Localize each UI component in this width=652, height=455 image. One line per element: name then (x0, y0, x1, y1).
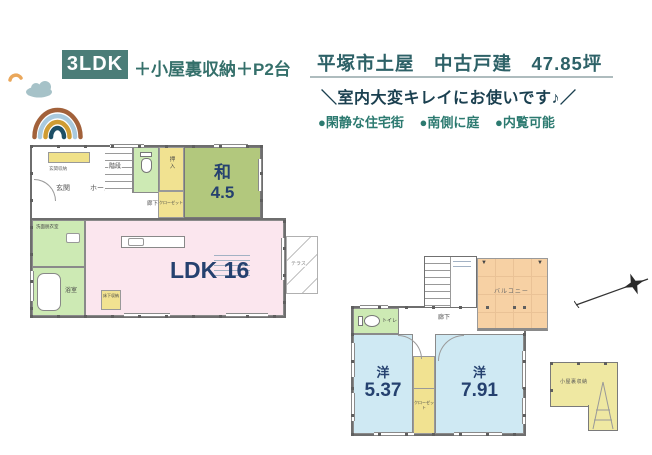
bathtub-icon (37, 273, 61, 311)
north-arrow-icon (574, 272, 652, 308)
cloud-icon (26, 81, 52, 98)
balcony-label: バルコニー (494, 289, 529, 296)
ladder-icon (548, 358, 628, 436)
room-label-corridor-2f: 廊下 (438, 315, 450, 322)
room-closet-2f (413, 356, 435, 434)
room-label-closet-2f: クローゼット (414, 401, 434, 411)
room-label-closet-1f: クローゼット (158, 201, 184, 206)
attic-storage-plan: 小屋裏収納 (548, 358, 628, 436)
laundry-mark-icon: ▼ (481, 260, 487, 266)
feature-list: ●閑静な住宅街 ●南側に庭 ●内覧可能 (318, 112, 567, 131)
room-label-corridor: 廊下 (147, 201, 158, 208)
toilet-icon (141, 158, 152, 173)
feature-item: ●内覧可能 (495, 115, 555, 130)
attic-label: 小屋裏収納 (560, 379, 588, 385)
laundry-mark-icon: ▼ (537, 260, 543, 266)
room-area-yo1: 5.37 (365, 380, 402, 403)
room-label-wa: 和 (214, 163, 231, 183)
terrace-label: テラス (291, 261, 306, 267)
wall-pillars (351, 306, 526, 309)
feature-item: ●南側に庭 (419, 115, 479, 130)
floor1-plan: 玄関収納 玄関 ホール 廊下 階段 押入 クローゼット 和 4.5 LDK 16… (28, 143, 324, 325)
layout-badge: 3LDK (62, 50, 128, 79)
room-japanese: 和 4.5 (184, 147, 261, 218)
shoe-cabinet-label: 玄関収納 (49, 166, 67, 171)
toilet-icon (140, 152, 152, 157)
layout-extras: ＋小屋裏収納＋P2台 (134, 55, 291, 80)
toilet-icon (358, 316, 363, 326)
room-label-oshiire: 押入 (169, 157, 176, 170)
catchphrase: ＼室内大変キレイにお使いです♪／ (321, 84, 577, 108)
fine-print-lines (453, 261, 471, 271)
room-label-toilet: トイレ (382, 318, 397, 324)
shoe-cabinet (48, 152, 90, 163)
wall-pillars (260, 145, 263, 218)
real-estate-flyer: 3LDK ＋小屋裏収納＋P2台 平塚市土屋 中古戸建 47.85坪 ＼室内大変キ… (0, 0, 652, 455)
room-area-yo2: 7.91 (461, 380, 498, 403)
washbasin-icon (66, 233, 80, 243)
floor-storage-label: 床下収納 (103, 294, 119, 299)
title-underline (310, 76, 613, 78)
wall-pillars (30, 145, 263, 148)
room-area-wa: 4.5 (211, 183, 235, 203)
room-label-ldk: LDK 16 (170, 257, 249, 285)
room-label-bath: 浴室 (65, 288, 77, 295)
mini-rainbow-arc (10, 75, 21, 80)
wall-pillars (523, 306, 526, 436)
room-label-yo2: 洋 (473, 365, 486, 381)
wall-pillars (550, 362, 618, 365)
room-label-stairs: 階段 (108, 164, 122, 171)
closet-divider (413, 388, 435, 389)
room-label-genkan: 玄関 (56, 185, 70, 193)
wall-pillars (351, 306, 354, 436)
wall-pillars (550, 362, 553, 406)
stair-treads (425, 257, 451, 307)
room-label-yo1: 洋 (376, 365, 389, 381)
sink-icon (128, 238, 144, 246)
room-label-washroom: 洗面脱衣室 (36, 224, 59, 229)
wall-pillars (30, 315, 286, 318)
wall-pillars (351, 433, 526, 436)
page-title: 平塚市土屋 中古戸建 47.85坪 (317, 50, 602, 76)
wall-pillars (30, 145, 33, 315)
rainbow-icon (35, 110, 81, 137)
wall-pillars (283, 220, 286, 315)
toilet-icon (364, 315, 380, 327)
feature-item: ●閑静な住宅街 (318, 115, 404, 130)
